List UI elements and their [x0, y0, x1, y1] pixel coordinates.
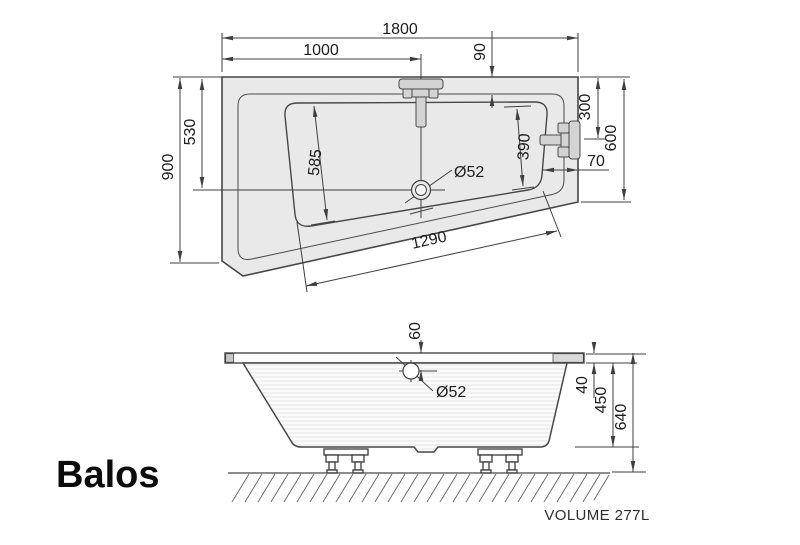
dim-faucet-offset: 1000 [222, 42, 421, 59]
dim-label-585: 585 [306, 148, 326, 176]
dim-rim-thickness: 40 [574, 342, 594, 398]
ground-hatching [228, 473, 610, 502]
tub-outer-shell-plan [222, 77, 578, 276]
leg [326, 455, 338, 473]
top-view: Ø52 1800 1000 [160, 21, 631, 292]
dim-label-1000: 1000 [303, 42, 339, 59]
dim-total-height: 640 [613, 353, 633, 472]
extension-lines-side [575, 354, 646, 472]
dim-right-side-width: 600 [603, 79, 624, 200]
dim-label-1800: 1800 [382, 21, 418, 38]
bathtub-technical-drawing: Ø52 1800 1000 [0, 0, 800, 545]
dim-label-300: 300 [577, 94, 594, 121]
technical-drawing-page: Ø52 1800 1000 [0, 0, 800, 545]
leg [480, 455, 492, 473]
dim-label-530: 530 [182, 119, 199, 146]
rim-slab [225, 353, 584, 363]
dim-left-side-width: 900 [160, 78, 180, 262]
dim-label-450: 450 [593, 387, 610, 414]
side-view: Ø52 60 40 450 640 [225, 322, 646, 502]
dim-tub-depth: 450 [593, 363, 613, 447]
drain-diameter-label-plan: Ø52 [454, 164, 484, 181]
dim-label-390: 390 [515, 133, 533, 161]
dim-label-70: 70 [587, 153, 605, 170]
volume-label: VOLUME 277L [544, 507, 649, 524]
dim-label-90: 90 [472, 43, 489, 61]
leg [352, 455, 364, 473]
leg [506, 455, 518, 473]
dim-label-60: 60 [407, 322, 424, 340]
dim-label-640: 640 [613, 404, 630, 431]
dim-overall-length: 1800 [222, 21, 578, 38]
drain-diameter-label-side: Ø52 [436, 384, 466, 401]
dim-label-40: 40 [574, 376, 591, 394]
product-title: Balos [56, 454, 159, 496]
dim-label-600: 600 [603, 125, 620, 152]
dim-top-to-drain: 530 [182, 79, 202, 188]
dim-label-900: 900 [160, 154, 177, 181]
